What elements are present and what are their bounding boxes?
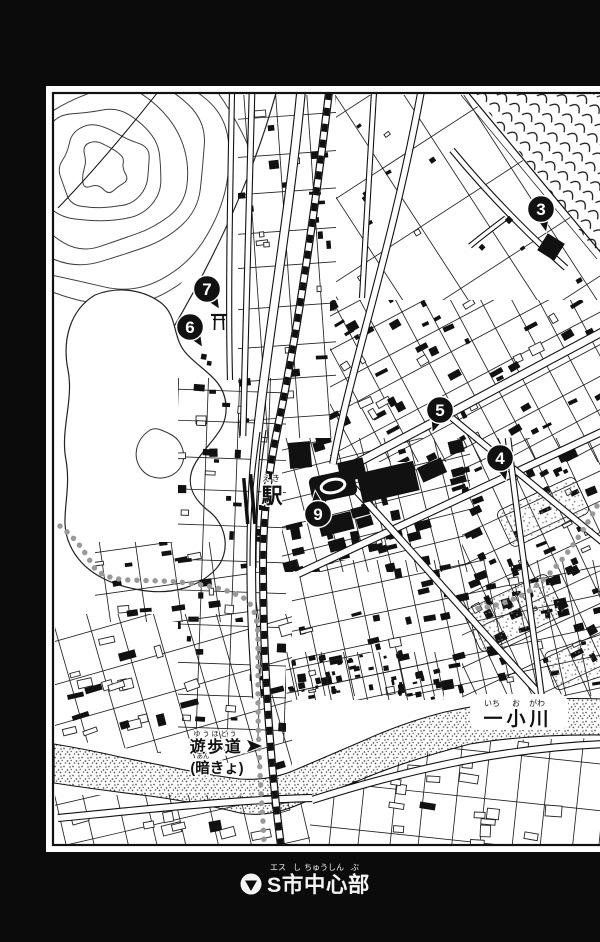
city-block bbox=[143, 821, 154, 829]
city-block bbox=[222, 403, 230, 408]
walkway-furigana: ゆうほどう bbox=[194, 730, 239, 738]
marker-number: 3 bbox=[536, 200, 545, 219]
city-block bbox=[209, 390, 216, 394]
city-block bbox=[316, 355, 328, 359]
walkway-sub-furigana: あん bbox=[197, 752, 211, 760]
city-block bbox=[393, 826, 404, 833]
city-block bbox=[225, 605, 234, 614]
city-block bbox=[259, 232, 264, 237]
city-block bbox=[226, 705, 236, 712]
river-label: 一小川 bbox=[483, 708, 552, 730]
city-block bbox=[197, 421, 206, 426]
city-block bbox=[481, 819, 496, 826]
title-text: S市中心部 bbox=[267, 872, 370, 897]
city-block bbox=[181, 510, 189, 515]
city-block bbox=[383, 665, 389, 671]
city-block bbox=[315, 685, 318, 689]
city-block bbox=[268, 125, 275, 131]
city-block bbox=[209, 588, 213, 595]
city-block bbox=[198, 592, 203, 598]
city-block bbox=[187, 636, 191, 642]
city-block bbox=[433, 679, 440, 685]
city-block bbox=[415, 691, 422, 697]
city-block bbox=[326, 240, 331, 249]
city-block bbox=[264, 242, 270, 247]
river-furigana: いちおがわ bbox=[484, 698, 545, 708]
city-block bbox=[441, 679, 454, 691]
map-scene: えき 駅 いちおがわ 一小川 ゆうほどう 遊歩道 あん (暗きょ) 376549… bbox=[0, 0, 600, 942]
marker6-target-building bbox=[207, 361, 212, 366]
city-block bbox=[396, 784, 407, 795]
city-block bbox=[214, 459, 219, 463]
city-block bbox=[163, 811, 174, 822]
city-block bbox=[545, 805, 562, 817]
city-block bbox=[205, 471, 215, 475]
city-block bbox=[193, 384, 204, 392]
city-block bbox=[509, 577, 519, 586]
station-furigana: えき bbox=[262, 474, 282, 483]
city-block bbox=[269, 160, 280, 170]
manga-map-page: えき 駅 いちおがわ 一小川 ゆうほどう 遊歩道 あん (暗きょ) 376549… bbox=[0, 0, 600, 942]
marker-number: 9 bbox=[313, 505, 322, 524]
city-block bbox=[309, 670, 316, 676]
city-block bbox=[177, 453, 186, 459]
marker-number: 6 bbox=[185, 318, 194, 337]
marker-number: 5 bbox=[435, 401, 444, 420]
marker-number: 4 bbox=[495, 449, 505, 468]
city-block bbox=[486, 808, 499, 820]
city-block bbox=[233, 502, 242, 506]
marker-number: 7 bbox=[202, 280, 211, 299]
station-label: 駅 bbox=[262, 485, 284, 508]
city-block bbox=[390, 510, 401, 522]
city-block bbox=[474, 812, 485, 818]
city-block bbox=[317, 286, 321, 292]
walkway-sub-label: (暗きょ) bbox=[190, 759, 243, 777]
city-block bbox=[235, 450, 241, 459]
marker6-target-building bbox=[201, 354, 207, 360]
city-block bbox=[297, 673, 307, 683]
city-block bbox=[507, 677, 514, 683]
city-block bbox=[277, 643, 287, 652]
city-block bbox=[373, 614, 381, 621]
city-block bbox=[480, 825, 491, 837]
city-block bbox=[195, 716, 205, 722]
city-block bbox=[203, 449, 211, 456]
large-building bbox=[288, 441, 312, 469]
city-block bbox=[254, 110, 266, 117]
city-block bbox=[388, 637, 401, 648]
city-block bbox=[226, 496, 231, 501]
city-block bbox=[229, 531, 234, 540]
city-block bbox=[427, 776, 440, 783]
city-block bbox=[318, 231, 324, 239]
